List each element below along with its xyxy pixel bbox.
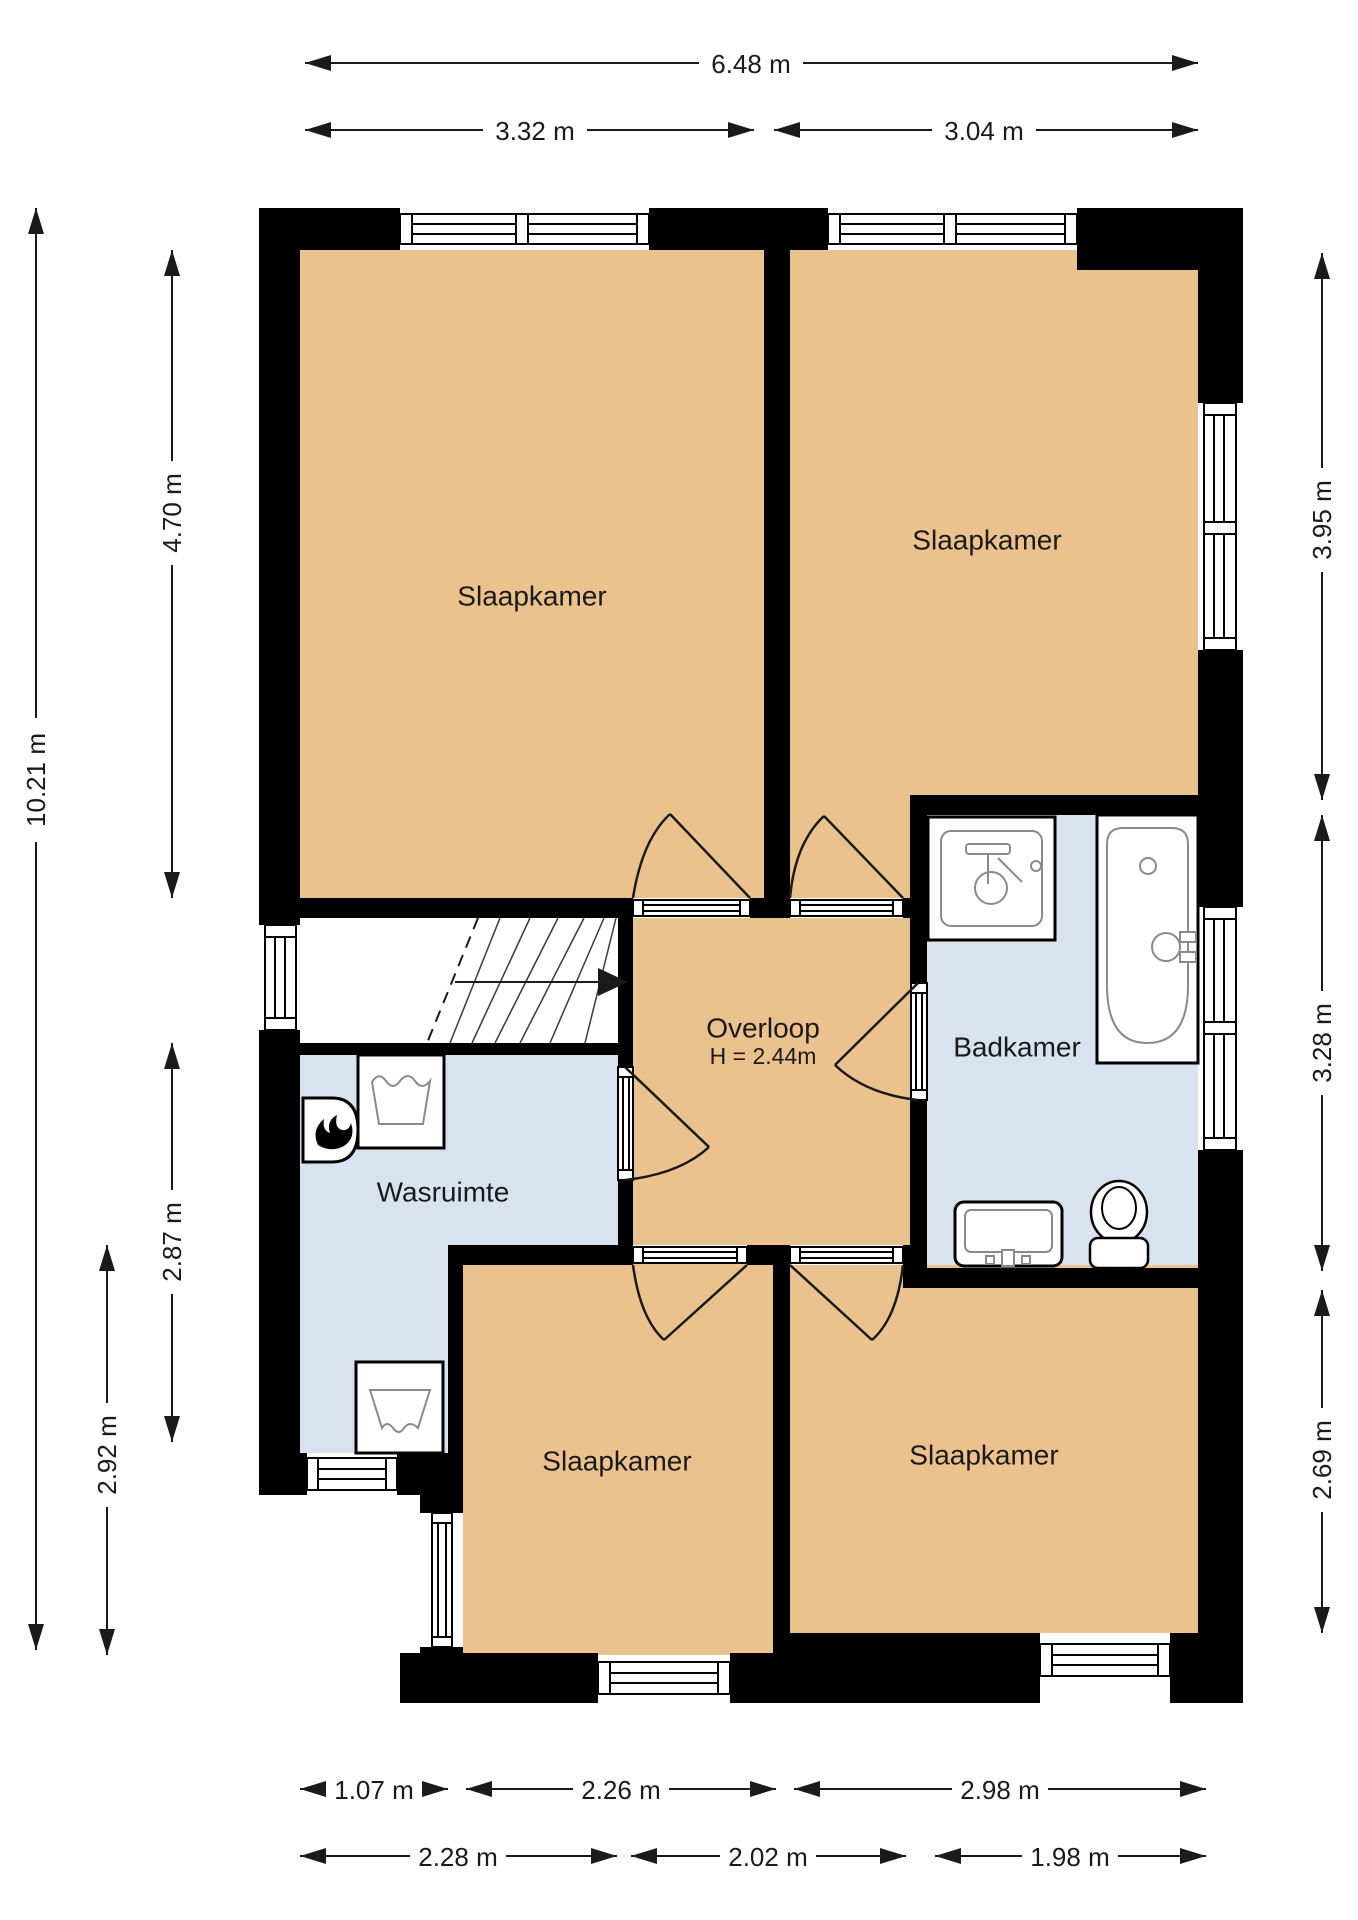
room-label-bedroom-bottom-right: Slaapkamer — [909, 1440, 1058, 1471]
dimension-bottom-left-span: 2.28 m — [300, 1839, 617, 1873]
stairwell-void — [300, 918, 618, 1043]
svg-text:2.28 m: 2.28 m — [418, 1842, 498, 1872]
wall-landing-bottom-stub — [747, 1245, 790, 1265]
dimension-top-right-bedroom: 3.04 m — [774, 113, 1198, 147]
dimension-left-top-bedroom: 4.70 m — [155, 250, 189, 898]
svg-text:4.70 m: 4.70 m — [157, 473, 187, 553]
svg-text:3.32 m: 3.32 m — [495, 116, 575, 146]
svg-text:3.04 m: 3.04 m — [944, 116, 1024, 146]
room-label-bedroom-top-left: Slaapkamer — [457, 581, 606, 612]
dimension-top-overall: 6.48 m — [305, 46, 1198, 80]
dimension-top-left-bedroom: 3.32 m — [305, 113, 754, 147]
wall-laundry-top — [300, 1043, 633, 1055]
wall-landing-left-lower — [618, 1180, 633, 1245]
dimension-bottom-landing-span: 2.02 m — [631, 1839, 906, 1873]
svg-text:2.92 m: 2.92 m — [92, 1415, 122, 1495]
room-floor-bedroom-top-left — [300, 250, 764, 898]
room-label-bathroom: Badkamer — [953, 1032, 1081, 1063]
boiler-fixture — [303, 1098, 358, 1162]
svg-text:2.98 m: 2.98 m — [960, 1775, 1040, 1805]
svg-text:2.69 m: 2.69 m — [1307, 1420, 1337, 1500]
wall-bottom-right-b — [1170, 1633, 1243, 1703]
wall-divider-top-bedrooms — [764, 250, 790, 898]
wall-laundry-bottom-left — [259, 1453, 307, 1495]
dimension-left-laundry: 2.87 m — [155, 1043, 189, 1442]
dimension-bottom-laundry-width: 1.07 m — [300, 1772, 448, 1806]
svg-text:2.02 m: 2.02 m — [728, 1842, 808, 1872]
window-right-bathroom — [1204, 907, 1236, 1150]
dimension-left-bottom-bedroom: 2.92 m — [90, 1245, 124, 1655]
bathtub-fixture — [1097, 815, 1198, 1063]
sink-tap-icon — [1002, 1250, 1014, 1266]
window-bottom-left-bedroom — [598, 1662, 730, 1694]
svg-text:1.07 m: 1.07 m — [334, 1775, 414, 1805]
wall-mid-left — [300, 898, 633, 918]
room-label-bedroom-top-right: Slaapkamer — [912, 525, 1061, 556]
wall-landing-bottom-right — [903, 1245, 927, 1288]
wall-left-upper — [259, 208, 300, 925]
dimension-right-bathroom: 3.28 m — [1305, 815, 1339, 1271]
svg-text:2.26 m: 2.26 m — [581, 1775, 661, 1805]
wall-step-upper — [420, 1453, 463, 1513]
wall-mid-stub — [750, 898, 790, 918]
window-left-stairwell — [265, 925, 296, 1030]
wall-top-pier — [649, 208, 828, 250]
wall-right-upper — [1198, 250, 1243, 403]
svg-text:6.48 m: 6.48 m — [711, 49, 791, 79]
bathtub-tap-icon — [1152, 933, 1180, 961]
room-label-landing-height: H = 2.44m — [710, 1043, 817, 1069]
wall-bottom-left-a — [400, 1653, 598, 1703]
washing-machine-fixture — [358, 1055, 444, 1148]
dimension-right-bottom-bedroom: 2.69 m — [1305, 1290, 1339, 1633]
svg-text:10.21 m: 10.21 m — [21, 733, 51, 827]
dimension-bottom-right-bedroom-width: 2.98 m — [794, 1772, 1206, 1806]
wall-left-lower — [259, 1030, 300, 1495]
shower-mixer-icon — [966, 844, 1010, 854]
window-bottom-left-bedroom-side — [432, 1513, 452, 1647]
sink-fixture — [955, 1202, 1062, 1266]
dimension-bottom-bathroom-span: 1.98 m — [935, 1839, 1206, 1873]
room-label-landing: Overloop — [706, 1013, 820, 1044]
wall-bathroom-bottom — [910, 1268, 1243, 1288]
wall-right-middle — [1198, 650, 1243, 907]
wall-bathroom-top — [910, 795, 1198, 815]
svg-text:1.98 m: 1.98 m — [1030, 1842, 1110, 1872]
room-label-laundry: Wasruimte — [377, 1177, 510, 1208]
dryer-fixture — [356, 1362, 443, 1453]
window-bottom-right-bedroom — [1040, 1644, 1170, 1676]
window-right-top-bedroom — [1204, 403, 1236, 650]
room-floor-landing — [633, 918, 910, 1245]
dimension-left-overall: 10.21 m — [19, 208, 53, 1650]
svg-text:3.28 m: 3.28 m — [1307, 1003, 1337, 1083]
svg-text:3.95 m: 3.95 m — [1307, 480, 1337, 560]
wall-landing-bottom-left — [448, 1245, 633, 1265]
room-label-bedroom-bottom-left: Slaapkamer — [542, 1446, 691, 1477]
svg-text:2.87 m: 2.87 m — [157, 1202, 187, 1282]
window-laundry-bottom — [307, 1458, 397, 1490]
toilet-fixture — [1090, 1181, 1148, 1268]
window-top-left-bedroom — [400, 214, 649, 244]
floorplan-canvas: Slaapkamer Slaapkamer Overloop H = 2.44m… — [0, 0, 1358, 1920]
floorplan-page: Slaapkamer Slaapkamer Overloop H = 2.44m… — [0, 0, 1358, 1920]
shower-fixture — [928, 817, 1055, 940]
wall-right-lower — [1198, 1150, 1243, 1703]
wall-bottom-right-a — [773, 1633, 1040, 1703]
dimension-right-top-bedroom: 3.95 m — [1305, 253, 1339, 800]
dimension-bottom-left-bedroom-width: 2.26 m — [466, 1772, 776, 1806]
wall-bathroom-left-upper — [910, 795, 927, 983]
wall-laundry-bedroom-divider — [448, 1245, 463, 1453]
window-top-right-bedroom — [828, 214, 1077, 244]
